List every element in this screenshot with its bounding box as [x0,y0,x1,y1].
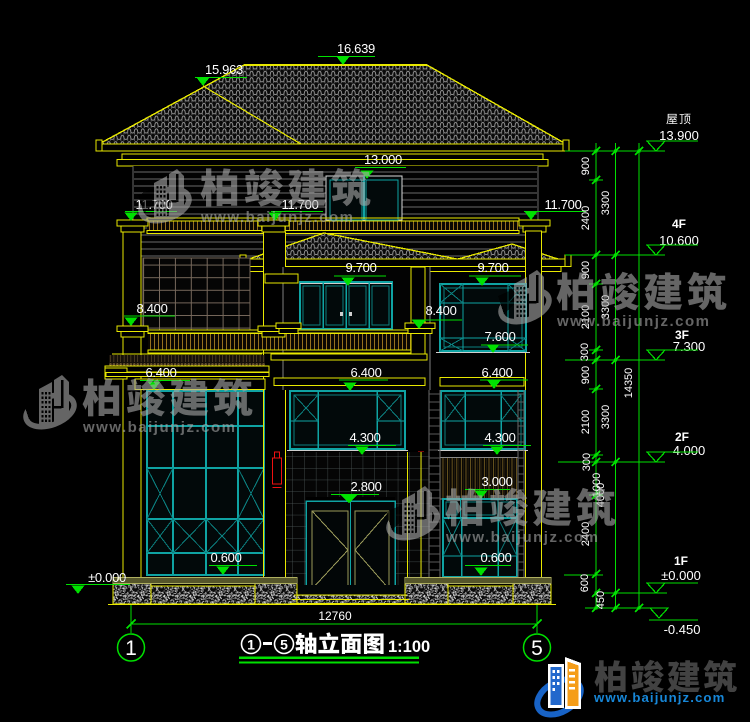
svg-text:4.000: 4.000 [673,443,706,458]
svg-text:0.600: 0.600 [210,550,241,565]
svg-text:4.300: 4.300 [349,430,380,445]
svg-text:6.400: 6.400 [145,365,176,380]
svg-text:4F: 4F [672,217,686,231]
svg-text:300: 300 [579,343,591,361]
svg-text:www.baijunjz.com: www.baijunjz.com [200,209,354,226]
svg-text:2100: 2100 [580,410,592,434]
svg-text:3300: 3300 [600,191,612,215]
svg-text:15.963: 15.963 [205,62,243,77]
svg-text:5: 5 [280,637,288,653]
svg-text:900: 900 [580,157,592,175]
svg-text:6.400: 6.400 [481,365,512,380]
svg-text:16.639: 16.639 [337,41,375,56]
svg-text:12760: 12760 [318,609,352,623]
svg-text:www.baijunjz.com: www.baijunjz.com [556,313,710,330]
svg-text:2.800: 2.800 [350,479,381,494]
svg-text:-0.450: -0.450 [664,622,701,637]
svg-text:1: 1 [125,637,137,660]
svg-text:2F: 2F [675,430,689,444]
svg-text:1: 1 [247,637,255,653]
svg-text:www.baijunjz.com: www.baijunjz.com [593,690,725,705]
svg-text:2400: 2400 [580,206,592,230]
svg-text:±0.000: ±0.000 [88,570,126,585]
svg-text:7.300: 7.300 [673,339,706,354]
svg-text:1:100: 1:100 [388,638,430,656]
svg-text:13.000: 13.000 [364,152,402,167]
svg-text:3.000: 3.000 [481,474,512,489]
svg-text:14350: 14350 [623,368,635,399]
svg-text:9.700: 9.700 [477,260,508,275]
svg-text:4.300: 4.300 [484,430,515,445]
svg-text:±0.000: ±0.000 [661,568,701,583]
svg-text:www.baijunjz.com: www.baijunjz.com [445,529,599,546]
svg-text:3300: 3300 [600,405,612,429]
svg-text:0.600: 0.600 [480,550,511,565]
svg-text:450: 450 [595,591,607,609]
svg-text:1F: 1F [674,554,688,568]
svg-text:11.700: 11.700 [545,197,582,212]
svg-text:9.700: 9.700 [345,260,376,275]
svg-text:6.400: 6.400 [350,365,381,380]
svg-text:8.400: 8.400 [425,303,456,318]
svg-text:300: 300 [581,453,593,471]
svg-text:5: 5 [531,637,543,660]
svg-text:www.baijunjz.com: www.baijunjz.com [82,419,236,436]
svg-text:8.400: 8.400 [136,301,167,316]
svg-text:7.600: 7.600 [484,329,515,344]
svg-text:600: 600 [579,574,591,592]
svg-text:900: 900 [580,366,592,384]
